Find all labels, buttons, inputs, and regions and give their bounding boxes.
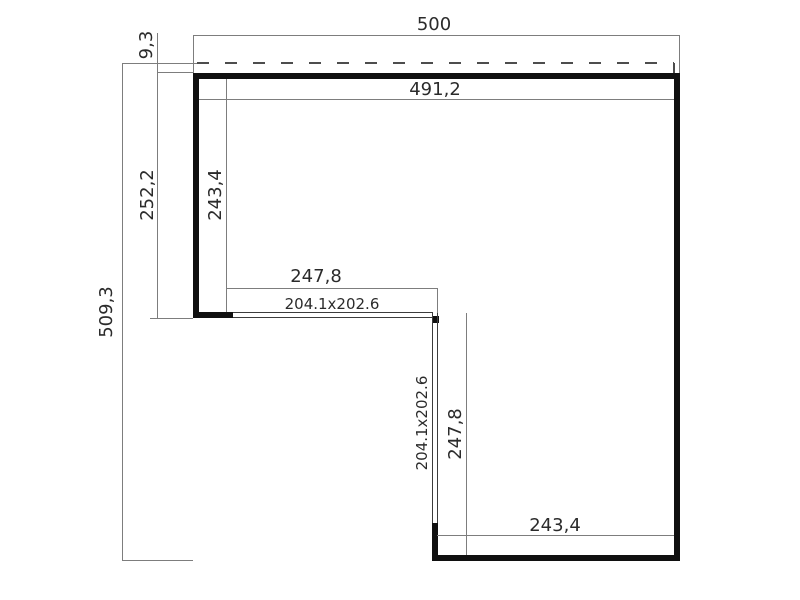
glazed-wall-side [432,313,438,523]
ext-line-overall-depth-bottom [122,560,193,561]
dim-line-left-inner [226,79,227,312]
wall-left [193,73,199,318]
roof-overhang-dashed-corner [673,63,675,73]
wall-front-stub [193,312,233,318]
wall-right [674,73,680,561]
dim-label-roof-overhang: 9,3 [138,23,156,67]
ext-line-wall-bottom-left [150,318,193,319]
wall-side-stub [432,523,438,561]
dim-line-overall-width [193,35,680,36]
roof-overhang-dashed-line [197,62,674,64]
dim-label-front-door-size: 204.1x202.6 [252,296,412,312]
wall-bottom [432,555,680,561]
ext-line-front-opening-right [437,288,438,313]
dim-line-side-opening [466,313,467,555]
floor-plan-canvas: 500 491,2 9,3 252,2 243,4 509,3 247,8 20… [0,0,800,600]
ext-line-overall-width-right [679,35,680,73]
dim-label-overall-depth: 509,3 [98,280,116,344]
dim-label-left-inner-depth: 243,4 [207,163,225,227]
dim-label-side-opening-depth: 247,8 [447,374,465,494]
ext-line-overall-width-left [193,35,194,73]
dim-label-side-door-size: 204.1x202.6 [414,343,430,503]
dim-label-inner-width: 491,2 [375,81,495,99]
dim-label-left-outer-depth: 252,2 [139,163,157,227]
dim-label-overall-width: 500 [374,16,494,34]
dim-line-overall-depth [122,63,123,561]
dim-line-front-opening [226,288,437,289]
dim-label-front-opening-width: 247,8 [256,268,376,286]
ext-line-roof-left [122,63,197,64]
ext-line-wall-top-left [157,72,193,73]
dim-label-bottom-inner-width: 243,4 [495,517,615,535]
